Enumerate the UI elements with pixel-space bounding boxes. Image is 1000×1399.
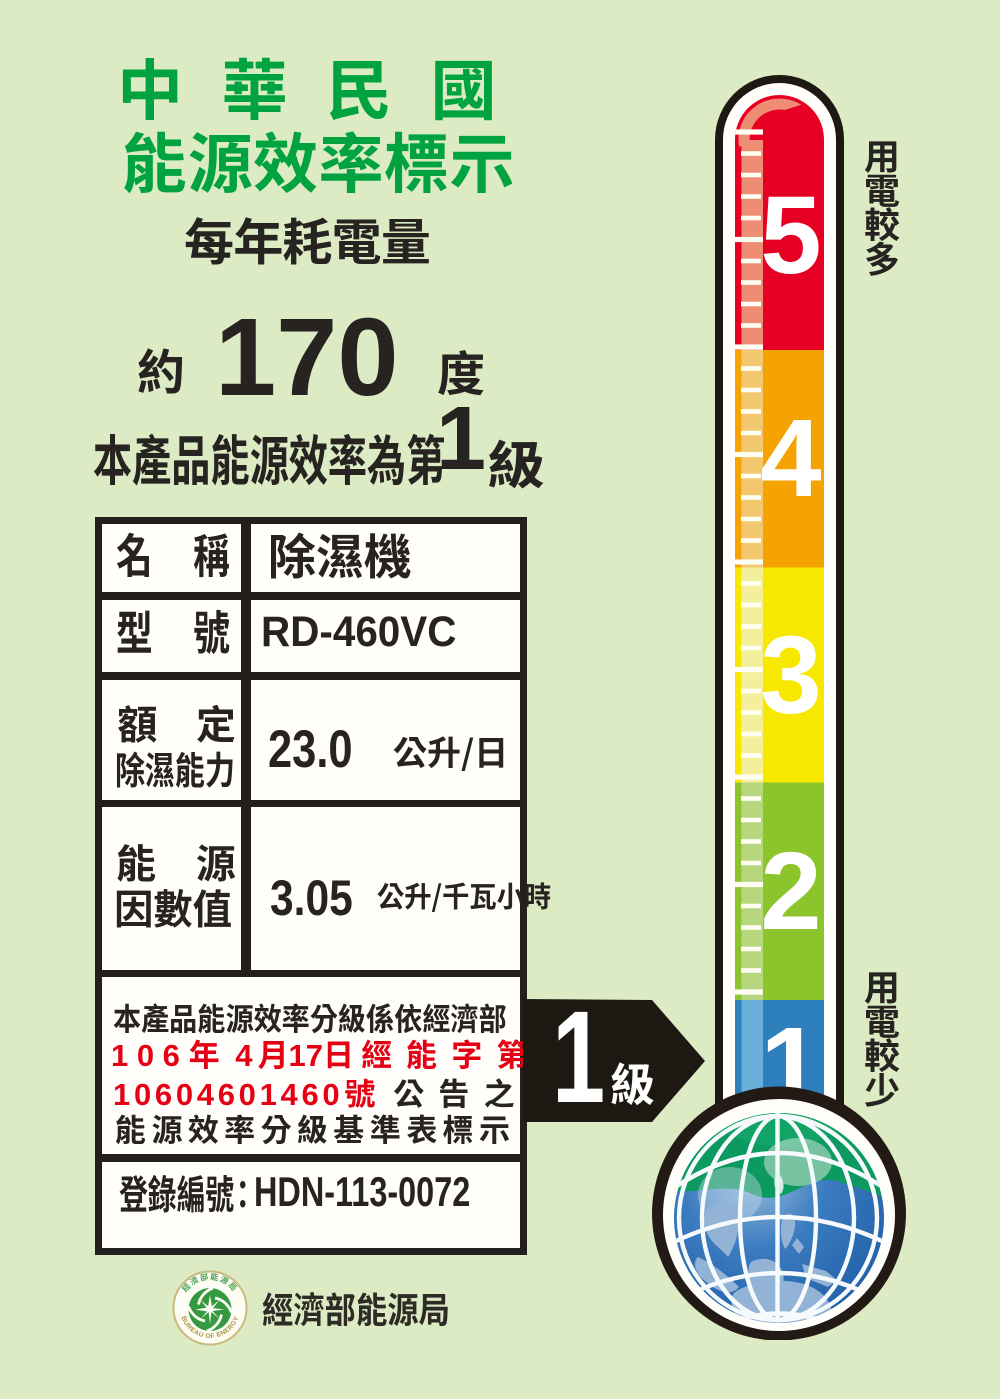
svg-text:4: 4: [760, 397, 821, 520]
svg-text:3: 3: [760, 614, 821, 737]
svg-text:2: 2: [760, 830, 821, 953]
svg-text:1: 1: [552, 999, 605, 1123]
svg-text:5: 5: [760, 174, 821, 297]
